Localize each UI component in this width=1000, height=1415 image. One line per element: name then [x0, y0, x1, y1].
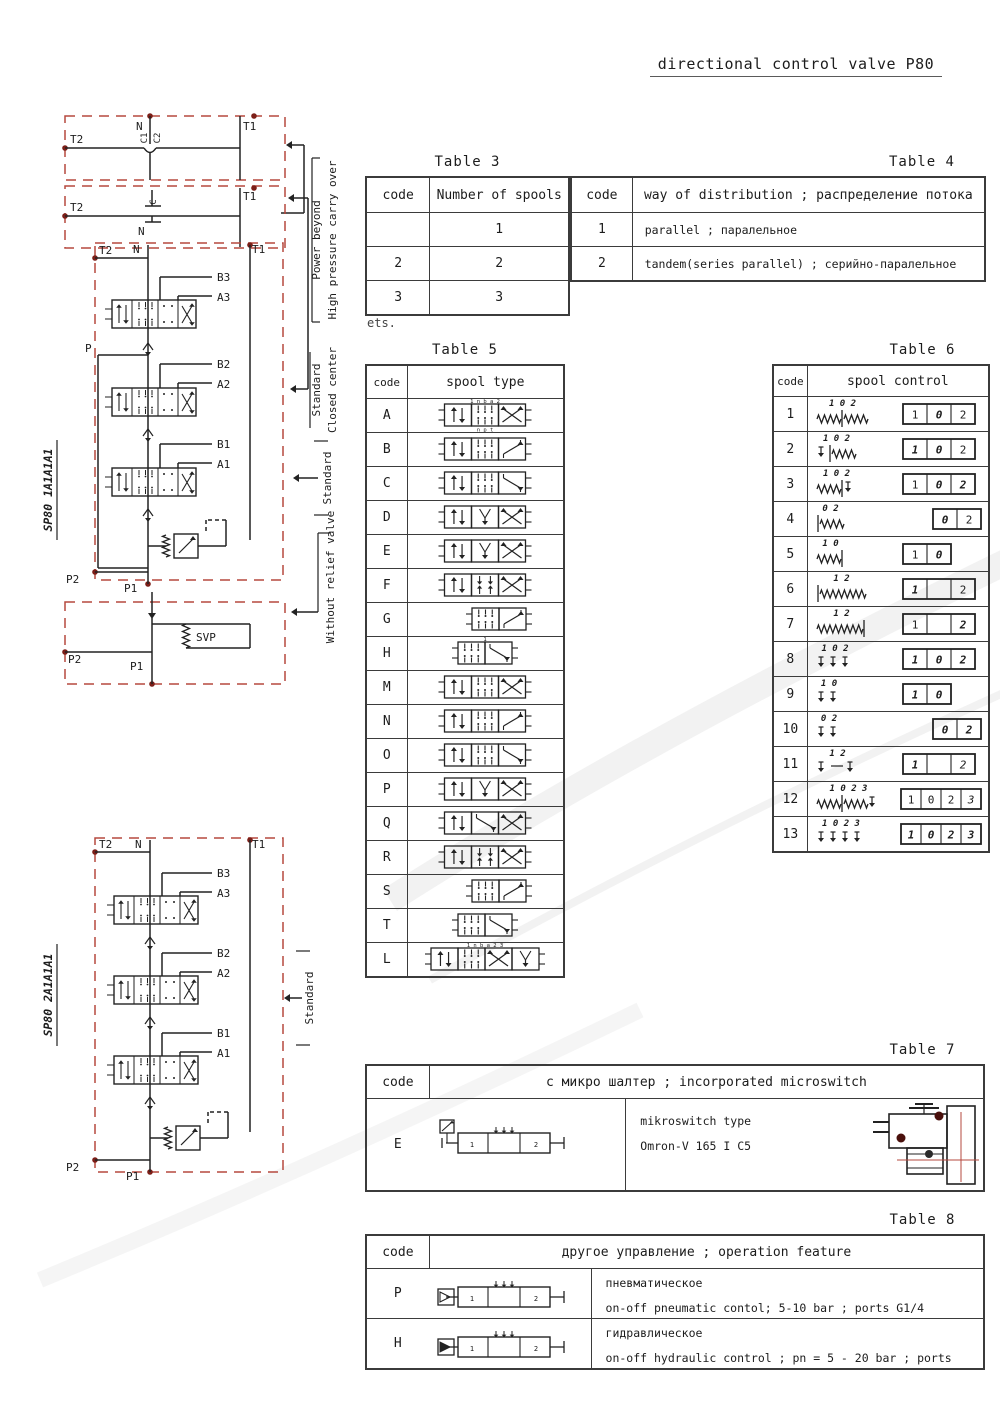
t5-header-row: codespool type [367, 366, 563, 398]
spool-code-M: M [367, 671, 407, 704]
model-sp80-2: SP80 2A1A1A1 [41, 953, 55, 1036]
table7-symbol-cell: 12 [429, 1099, 626, 1190]
control-code-5: 5 [774, 537, 807, 571]
table6-spool-control: codespool control11 0 210221 0 210231 0 … [772, 364, 990, 853]
control-symbol-1: 1 0 2102 [809, 397, 987, 431]
control-code-8: 8 [774, 642, 807, 676]
svg-text:3: 3 [967, 829, 975, 842]
spool-symbol-cell [407, 739, 563, 772]
side-label-without-relief: Without relief valve [324, 511, 337, 643]
control-row-11: 111 212 [774, 746, 988, 781]
control-row-13: 131 0 2 31023 [774, 816, 988, 851]
spool-row-H: H1 [367, 636, 563, 670]
control-symbol-cell: 1 010 [807, 537, 988, 571]
label-t1: T1 [252, 838, 265, 851]
control-row-6: 61 212 [774, 571, 988, 606]
spool-symbol-cell [407, 773, 563, 806]
t3-row-1: 22 [367, 246, 568, 280]
label-n: N [136, 120, 143, 133]
table5-title: Table 5 [365, 342, 565, 358]
control-symbol-cell: 1 0 2102 [807, 432, 988, 466]
t4-cell-1: parallel ; паралельное [632, 213, 984, 246]
svg-text:1: 1 [908, 794, 915, 807]
svg-text:2: 2 [965, 724, 973, 737]
spool-row-N: N [367, 704, 563, 738]
spool-row-G: G [367, 602, 563, 636]
label-c1: C1 [140, 133, 150, 144]
spool-symbol-B [409, 433, 561, 466]
spool-symbol-O [409, 739, 561, 772]
control-symbol-cell: 0 202 [807, 502, 988, 536]
table8-code-H: H [367, 1319, 429, 1368]
microswitch-drawing [849, 1102, 981, 1188]
svg-text:1 2: 1 2 [833, 574, 849, 584]
label-t2: T2 [70, 133, 83, 146]
label-t2: T2 [70, 201, 83, 214]
spool-code-E: E [367, 535, 407, 568]
svg-text:1 0 2: 1 0 2 [823, 469, 850, 479]
spool-symbol-cell [407, 671, 563, 704]
t6-header-control: spool control [807, 366, 988, 396]
t6-header-code: code [774, 366, 807, 396]
t3-row-2: 33 [367, 280, 568, 314]
table7-header-desc: с микро шалтер ; incorporated microswitc… [429, 1066, 983, 1098]
label-b1: B1 [217, 1027, 230, 1040]
table8-symbol-P: 12 [429, 1269, 591, 1318]
svg-text:2: 2 [534, 1295, 538, 1303]
label-svp: SVP [196, 631, 216, 644]
pneumatic-label-ru: пневматическое [606, 1271, 983, 1296]
label-t2: T2 [99, 244, 112, 257]
model-sp80-1: SP80 1A1A1A1 [41, 448, 55, 531]
label-n: N [138, 225, 145, 238]
spool-symbol-L: 1 n b a 2 3 [409, 943, 561, 976]
label-c: C [149, 199, 159, 204]
table7-microswitch: code с микро шалтер ; incorporated micro… [365, 1064, 985, 1192]
svg-text:1 0 2: 1 0 2 [821, 644, 848, 654]
control-row-3: 31 0 2102 [774, 466, 988, 501]
spool-row-P: P [367, 772, 563, 806]
label-p1: P1 [130, 660, 143, 673]
control-symbol-cell: 1 010 [807, 677, 988, 711]
svg-text:0: 0 [936, 479, 943, 492]
control-row-10: 100 202 [774, 711, 988, 746]
table8-symbol-H: 12 [429, 1319, 591, 1368]
t6-header-row: codespool control [774, 366, 988, 396]
label-c2: C2 [153, 133, 163, 144]
svg-text:2: 2 [960, 759, 967, 772]
t3-row-0: 1 [367, 212, 568, 246]
spool-symbol-R [409, 841, 561, 874]
t3-header-0: code [367, 178, 429, 212]
svg-text:1: 1 [484, 637, 487, 643]
label-t2: T2 [99, 838, 112, 851]
label-n: N [135, 838, 142, 851]
spool-row-R: R [367, 840, 563, 874]
t3-cell-0 [367, 213, 429, 246]
spool-symbol-N [409, 705, 561, 738]
control-symbol-13: 1 0 2 31023 [809, 817, 987, 851]
control-symbol-6: 1 212 [809, 572, 987, 606]
spool-code-B: B [367, 433, 407, 466]
svg-text:0: 0 [936, 689, 943, 702]
svg-text:1: 1 [470, 1295, 474, 1303]
table8-title: Table 8 [855, 1212, 990, 1228]
label-b3: B3 [217, 867, 230, 880]
spool-symbol-A: 1 n b a 2n p t [409, 399, 561, 432]
control-code-6: 6 [774, 572, 807, 606]
svg-text:1 0 2 3: 1 0 2 3 [822, 819, 860, 829]
label-p2: P2 [66, 573, 79, 586]
svg-text:1: 1 [912, 689, 919, 702]
t3-cell-1: 3 [429, 281, 568, 314]
svg-text:1 n b a 2: 1 n b a 2 [470, 399, 500, 405]
svg-text:1: 1 [912, 409, 919, 422]
control-symbol-10: 0 202 [809, 712, 987, 746]
t4-row-1: 2tandem(series parallel) ; серийно-парал… [572, 246, 984, 280]
t4-header-1: way of distribution ; распределение пото… [632, 178, 984, 212]
svg-text:0: 0 [936, 444, 943, 457]
svg-text:0: 0 [942, 514, 949, 527]
spool-symbol-H: 1 [409, 637, 561, 670]
control-row-8: 81 0 2102 [774, 641, 988, 676]
svg-text:1: 1 [912, 619, 919, 632]
spool-code-O: O [367, 739, 407, 772]
control-symbol-9: 1 010 [809, 677, 987, 711]
spool-code-H: H [367, 637, 407, 670]
t4-cell-0: 1 [572, 213, 632, 246]
svg-text:1: 1 [912, 549, 919, 562]
table6-title: Table 6 [855, 342, 990, 358]
svg-text:0: 0 [928, 829, 935, 842]
table8-operation-feature: code другое управление ; operation featu… [365, 1234, 985, 1370]
spool-row-E: E [367, 534, 563, 568]
svg-text:2: 2 [959, 654, 967, 667]
svg-text:1: 1 [470, 1141, 474, 1149]
spool-code-C: C [367, 467, 407, 500]
spool-code-A: A [367, 399, 407, 432]
label-n: N [133, 243, 140, 256]
pneumatic-valve-symbol: 12 [432, 1273, 587, 1315]
control-code-1: 1 [774, 397, 807, 431]
control-code-13: 13 [774, 817, 807, 851]
control-code-12: 12 [774, 782, 807, 816]
control-code-2: 2 [774, 432, 807, 466]
spool-symbol-cell [407, 569, 563, 602]
spool-row-B: B [367, 432, 563, 466]
table8-text-P: пневматическое on-off pneumatic contol; … [591, 1269, 983, 1318]
control-code-11: 11 [774, 747, 807, 781]
table8-header-desc: другое управление ; operation feature [429, 1236, 983, 1268]
svg-text:1 0: 1 0 [821, 679, 838, 689]
etc-note: ets. [367, 316, 396, 330]
label-p2: P2 [68, 653, 81, 666]
control-symbol-cell: 0 202 [807, 712, 988, 746]
label-t1: T1 [243, 190, 256, 203]
label-p1: P1 [124, 582, 137, 595]
svg-text:1: 1 [912, 654, 919, 667]
svg-text:1: 1 [912, 584, 919, 597]
spool-row-F: F [367, 568, 563, 602]
label-t1: T1 [243, 120, 256, 133]
control-symbol-cell: 1 0 2 31023 [807, 817, 988, 851]
control-symbol-4: 0 202 [809, 502, 987, 536]
svg-text:0: 0 [936, 409, 943, 422]
control-code-9: 9 [774, 677, 807, 711]
control-row-4: 40 202 [774, 501, 988, 536]
page-title: directional control valve P80 [650, 55, 942, 77]
label-p1: P1 [126, 1170, 139, 1183]
control-row-9: 91 010 [774, 676, 988, 711]
svg-text:n p t: n p t [477, 428, 494, 433]
control-symbol-8: 1 0 2102 [809, 642, 987, 676]
spool-symbol-Q [409, 807, 561, 840]
table7-text-cell: mikroswitch type Omron-V 165 I C5 [625, 1099, 983, 1190]
table4-way-of-distribution: codeway of distribution ; распределение … [570, 176, 986, 282]
svg-text:1: 1 [912, 444, 919, 457]
svg-text:1: 1 [908, 829, 915, 842]
spool-row-C: C [367, 466, 563, 500]
label-b3: B3 [217, 271, 230, 284]
label-p: P [85, 342, 92, 355]
t4-row-0: 1parallel ; паралельное [572, 212, 984, 246]
svg-text:1 0: 1 0 [822, 539, 839, 549]
spool-symbol-cell [407, 875, 563, 908]
spool-symbol-G [409, 603, 561, 636]
svg-text:1 2: 1 2 [829, 749, 845, 759]
label-a3: A3 [217, 887, 230, 900]
t5-header-type: spool type [407, 366, 563, 398]
side-label-standard: Standard [321, 452, 334, 505]
control-row-7: 71 212 [774, 606, 988, 641]
t4-cell-1: tandem(series parallel) ; серийно-парале… [632, 247, 984, 280]
spool-code-L: L [367, 943, 407, 976]
spool-symbol-T [409, 909, 561, 942]
spool-symbol-cell [407, 705, 563, 738]
spool-row-A: A1 n b a 2n p t [367, 398, 563, 432]
spool-row-M: M [367, 670, 563, 704]
side-label-carry-over: High pressure carry over [326, 160, 339, 319]
svg-text:2: 2 [948, 794, 955, 807]
hydraulic-circuits-diagram: T2NC1C2T1T2CNT1T2NT1B3A3B2A2B1A1PP2P1SP8… [0, 0, 360, 1200]
svg-text:1 2: 1 2 [833, 609, 849, 619]
control-symbol-11: 1 212 [809, 747, 987, 781]
svg-text:1 0 2: 1 0 2 [823, 434, 850, 444]
t3-cell-1: 1 [429, 213, 568, 246]
control-code-4: 4 [774, 502, 807, 536]
spool-code-R: R [367, 841, 407, 874]
table4-title: Table 4 [858, 154, 986, 170]
svg-text:2: 2 [960, 444, 967, 457]
svg-text:1: 1 [470, 1345, 474, 1353]
t4-header-0: code [572, 178, 632, 212]
microswitch-valve-symbol: 12 [432, 1119, 622, 1171]
svg-text:1 0 2: 1 0 2 [829, 399, 856, 409]
t3-header-row: codeNumber of spools [367, 178, 568, 212]
spool-symbol-C [409, 467, 561, 500]
spool-symbol-cell: 1 [407, 637, 563, 670]
svg-text:1: 1 [912, 759, 919, 772]
spool-code-D: D [367, 501, 407, 534]
spool-code-S: S [367, 875, 407, 908]
control-symbol-5: 1 010 [809, 537, 987, 571]
spool-symbol-cell: 1 n b a 2n p t [407, 399, 563, 432]
control-symbol-2: 1 0 2102 [809, 432, 987, 466]
svg-text:1 0 2 3: 1 0 2 3 [829, 784, 867, 794]
table7-code-E: E [367, 1099, 429, 1190]
spool-code-N: N [367, 705, 407, 738]
spool-symbol-cell [407, 535, 563, 568]
svg-text:0: 0 [942, 724, 949, 737]
spool-code-T: T [367, 909, 407, 942]
spool-row-Q: Q [367, 806, 563, 840]
spool-symbol-cell [407, 501, 563, 534]
spool-symbol-cell [407, 603, 563, 636]
label-a1: A1 [217, 1047, 230, 1060]
svg-text:2: 2 [534, 1141, 538, 1149]
control-symbol-cell: 1 212 [807, 607, 988, 641]
control-code-10: 10 [774, 712, 807, 746]
spool-row-O: O [367, 738, 563, 772]
table7-title: Table 7 [855, 1042, 990, 1058]
label-p2: P2 [66, 1161, 79, 1174]
svg-text:0 2: 0 2 [821, 714, 837, 724]
svg-text:1 n b a 2 3: 1 n b a 2 3 [467, 943, 503, 949]
svg-text:0: 0 [936, 549, 943, 562]
table3-number-of-spools: codeNumber of spools12233 [365, 176, 570, 316]
spool-symbol-S [409, 875, 561, 908]
control-code-3: 3 [774, 467, 807, 501]
svg-text:3: 3 [967, 794, 975, 807]
table8-code-P: P [367, 1269, 429, 1318]
spool-row-T: T [367, 908, 563, 942]
hydraulic-valve-symbol: 12 [432, 1323, 587, 1365]
spool-symbol-M [409, 671, 561, 704]
spool-row-L: L1 n b a 2 3 [367, 942, 563, 976]
spool-symbol-cell: 1 n b a 2 3 [407, 943, 563, 976]
table8-header-code: code [367, 1236, 429, 1268]
svg-text:2: 2 [966, 514, 973, 527]
svg-text:0: 0 [936, 654, 943, 667]
control-row-12: 121 0 2 31023 [774, 781, 988, 816]
spool-symbol-cell [407, 841, 563, 874]
spool-symbol-cell [407, 909, 563, 942]
spool-code-P: P [367, 773, 407, 806]
table8-text-H: гидравлическое on-off hydraulic control … [591, 1319, 983, 1368]
spool-symbol-P [409, 773, 561, 806]
t3-header-1: Number of spools [429, 178, 568, 212]
side-label-closed-center: Closed center [326, 347, 339, 433]
spool-code-Q: Q [367, 807, 407, 840]
spool-code-F: F [367, 569, 407, 602]
control-code-7: 7 [774, 607, 807, 641]
spool-row-S: S [367, 874, 563, 908]
table7-header-code: code [367, 1066, 429, 1098]
label-b2: B2 [217, 358, 230, 371]
label-t1: T1 [252, 243, 265, 256]
control-symbol-cell: 1 212 [807, 572, 988, 606]
pneumatic-label-en: on-off pneumatic contol; 5-10 bar ; port… [606, 1296, 983, 1318]
table3-title: Table 3 [365, 154, 570, 170]
label-a2: A2 [217, 378, 230, 391]
control-row-5: 51 010 [774, 536, 988, 571]
svg-text:2: 2 [534, 1345, 538, 1353]
table5-spool-type: codespool typeA1 n b a 2n p tBCDEFGH1MNO… [365, 364, 565, 978]
label-a3: A3 [217, 291, 230, 304]
svg-text:2: 2 [960, 584, 967, 597]
svg-text:0: 0 [928, 794, 935, 807]
t4-header-row: codeway of distribution ; распределение … [572, 178, 984, 212]
hydraulic-label-en: on-off hydraulic control ; pn = 5 - 20 b… [606, 1346, 983, 1368]
spool-symbol-cell [407, 467, 563, 500]
datasheet-page: { "title": "directional control valve P8… [0, 0, 1000, 1415]
spool-code-G: G [367, 603, 407, 636]
spool-symbol-cell [407, 807, 563, 840]
control-row-2: 21 0 2102 [774, 431, 988, 466]
svg-text:2: 2 [959, 479, 967, 492]
label-a2: A2 [217, 967, 230, 980]
spool-symbol-cell [407, 433, 563, 466]
control-symbol-cell: 1 0 2102 [807, 397, 988, 431]
control-symbol-cell: 1 212 [807, 747, 988, 781]
control-symbol-cell: 1 0 2 31023 [807, 782, 988, 816]
side-label-standard-cc: Standard [310, 364, 323, 417]
control-symbol-3: 1 0 2102 [809, 467, 987, 501]
spool-symbol-D [409, 501, 561, 534]
svg-text:2: 2 [959, 619, 967, 632]
label-b2: B2 [217, 947, 230, 960]
spool-row-D: D [367, 500, 563, 534]
control-symbol-cell: 1 0 2102 [807, 642, 988, 676]
side-label-standard-2: Standard [303, 972, 316, 1025]
svg-text:1: 1 [912, 479, 919, 492]
svg-text:2: 2 [960, 409, 967, 422]
control-symbol-cell: 1 0 2102 [807, 467, 988, 501]
label-a1: A1 [217, 458, 230, 471]
label-b1: B1 [217, 438, 230, 451]
control-row-1: 11 0 2102 [774, 396, 988, 431]
t4-cell-0: 2 [572, 247, 632, 280]
t3-cell-1: 2 [429, 247, 568, 280]
control-symbol-7: 1 212 [809, 607, 987, 641]
spool-symbol-E [409, 535, 561, 568]
svg-text:2: 2 [947, 829, 955, 842]
t3-cell-0: 2 [367, 247, 429, 280]
t5-header-code: code [367, 366, 407, 398]
t3-cell-0: 3 [367, 281, 429, 314]
svg-text:0 2: 0 2 [822, 504, 838, 514]
control-symbol-12: 1 0 2 31023 [809, 782, 987, 816]
spool-symbol-F [409, 569, 561, 602]
hydraulic-label-ru: гидравлическое [606, 1321, 983, 1346]
